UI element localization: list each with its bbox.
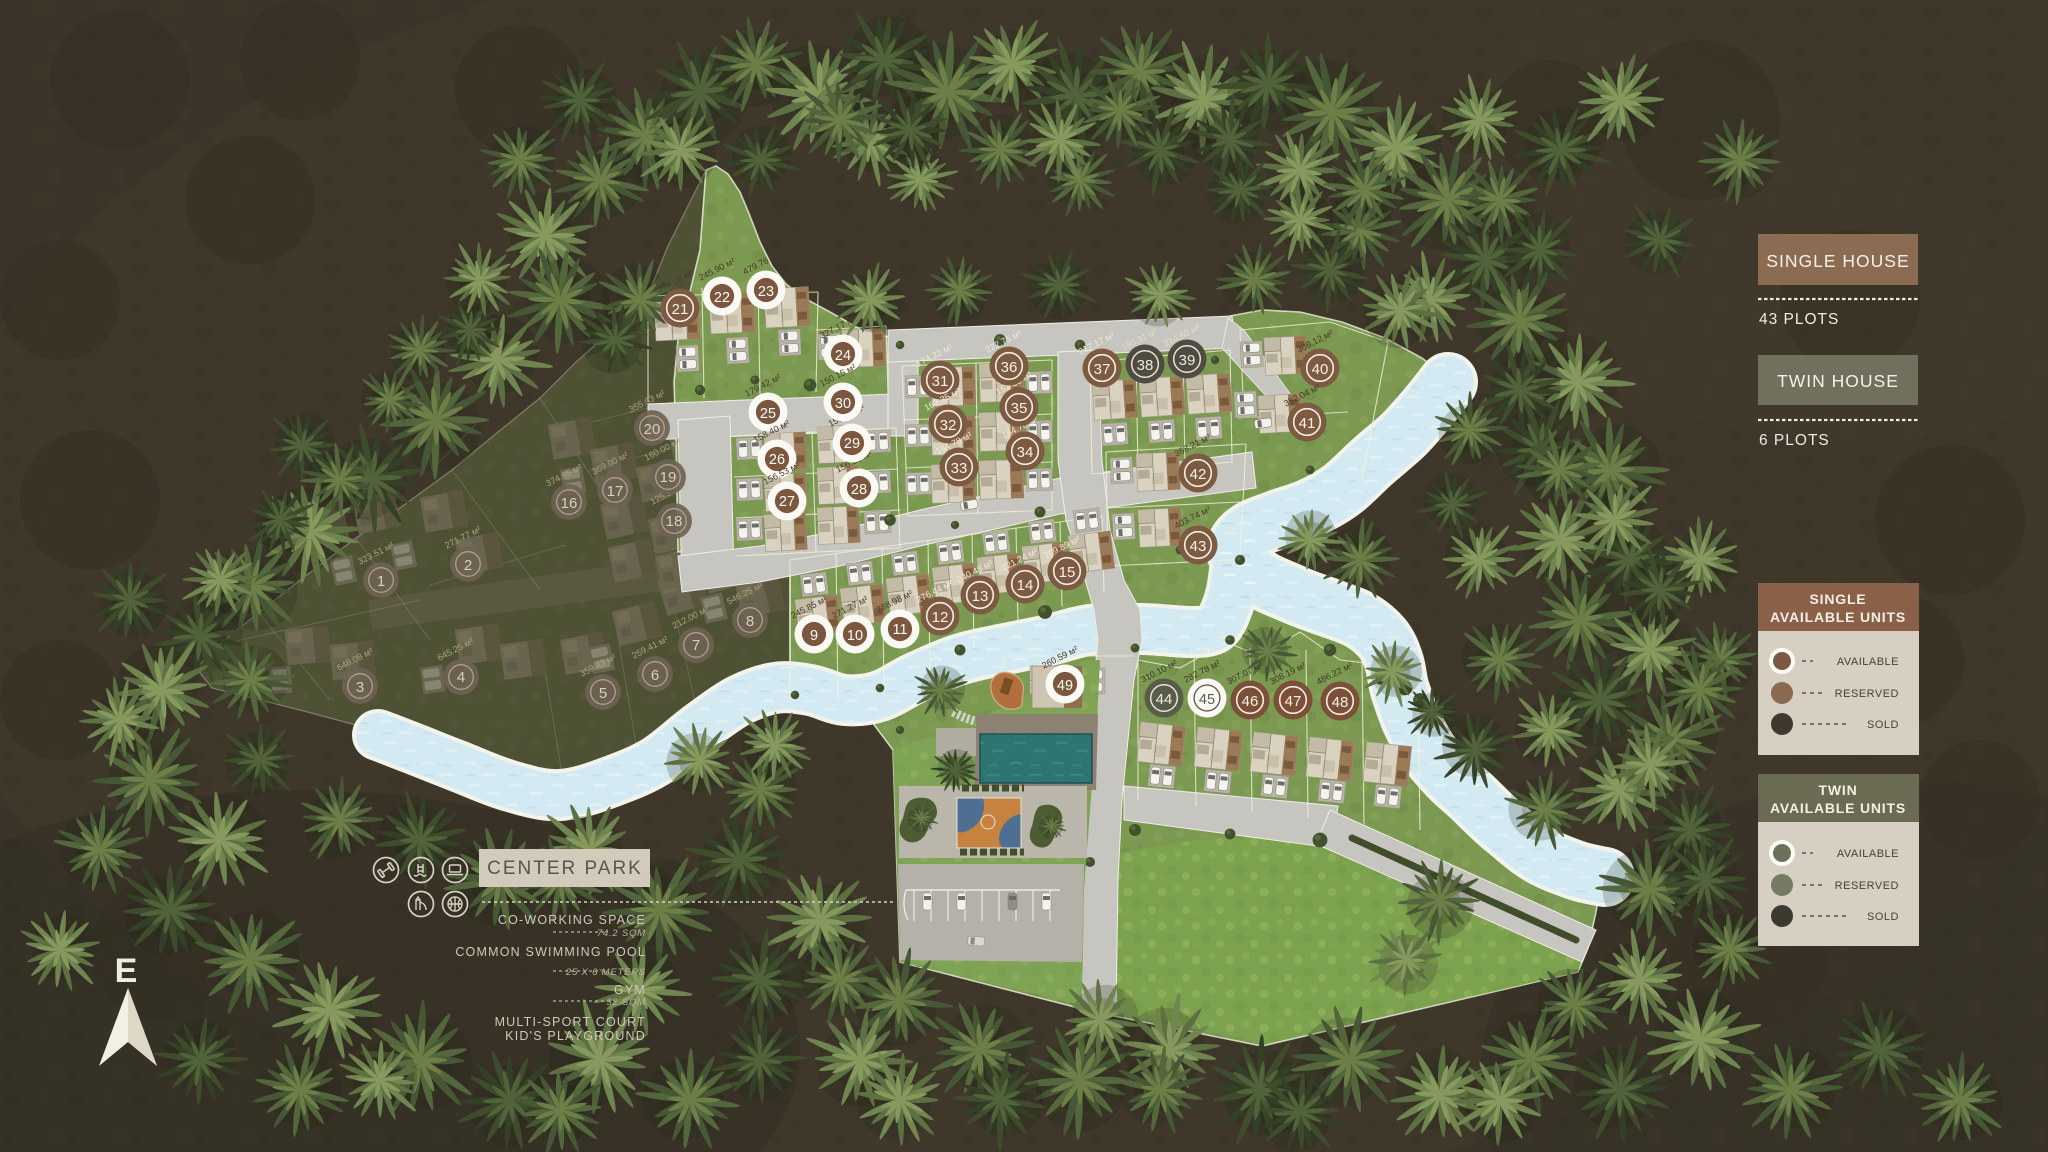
svg-text:15: 15 — [1059, 564, 1076, 581]
svg-text:RESERVED: RESERVED — [1835, 880, 1899, 892]
svg-text:KID'S PLAYGROUND: KID'S PLAYGROUND — [505, 1029, 646, 1043]
svg-text:45: 45 — [1199, 692, 1215, 708]
svg-text:25 X 6 METERS: 25 X 6 METERS — [565, 967, 646, 978]
svg-text:20: 20 — [644, 421, 661, 438]
svg-text:4: 4 — [457, 669, 465, 686]
svg-text:1: 1 — [377, 573, 385, 590]
svg-text:SOLD: SOLD — [1867, 719, 1899, 731]
svg-text:10: 10 — [847, 628, 863, 644]
svg-text:24: 24 — [835, 348, 851, 364]
svg-text:32 SQM: 32 SQM — [606, 997, 646, 1008]
svg-text:AVAILABLE: AVAILABLE — [1837, 656, 1899, 668]
svg-text:30: 30 — [835, 396, 851, 412]
svg-text:23: 23 — [758, 284, 774, 300]
svg-text:32: 32 — [940, 417, 957, 434]
svg-text:5: 5 — [599, 685, 607, 702]
svg-text:14: 14 — [1017, 577, 1034, 594]
svg-text:CO-WORKING SPACE: CO-WORKING SPACE — [498, 913, 646, 927]
svg-text:37: 37 — [1094, 361, 1111, 378]
svg-text:18: 18 — [666, 513, 683, 530]
svg-text:GYM: GYM — [614, 983, 646, 997]
svg-text:12: 12 — [932, 609, 949, 626]
svg-text:COMMON SWIMMING POOL: COMMON SWIMMING POOL — [455, 945, 646, 959]
svg-text:RESERVED: RESERVED — [1835, 688, 1899, 700]
svg-text:6: 6 — [651, 667, 659, 684]
svg-text:74.2 SQM: 74.2 SQM — [597, 928, 646, 939]
svg-text:38: 38 — [1137, 357, 1154, 374]
svg-text:MULTI-SPORT COURT: MULTI-SPORT COURT — [495, 1015, 646, 1029]
svg-text:16: 16 — [561, 495, 578, 512]
svg-text:36: 36 — [1001, 359, 1018, 376]
svg-text:42: 42 — [1190, 466, 1207, 483]
svg-text:2: 2 — [464, 557, 472, 574]
svg-text:CENTER PARK: CENTER PARK — [487, 858, 643, 879]
svg-text:46: 46 — [1242, 693, 1259, 710]
svg-text:48: 48 — [1332, 694, 1349, 711]
svg-text:6 PLOTS: 6 PLOTS — [1759, 432, 1830, 449]
svg-text:47: 47 — [1285, 693, 1302, 710]
svg-text:7: 7 — [692, 637, 700, 654]
svg-text:34: 34 — [1017, 444, 1034, 461]
svg-text:28: 28 — [851, 482, 867, 498]
svg-text:9: 9 — [810, 628, 818, 644]
svg-text:SINGLE: SINGLE — [1810, 591, 1867, 607]
svg-text:22: 22 — [714, 290, 730, 306]
svg-text:41: 41 — [1299, 415, 1316, 432]
svg-text:31: 31 — [932, 373, 949, 390]
svg-text:29: 29 — [844, 436, 860, 452]
svg-text:SOLD: SOLD — [1867, 911, 1899, 923]
svg-text:TWIN HOUSE: TWIN HOUSE — [1777, 371, 1899, 391]
svg-text:26: 26 — [769, 452, 785, 468]
svg-text:17: 17 — [607, 483, 624, 500]
svg-text:11: 11 — [892, 622, 907, 638]
svg-text:43: 43 — [1190, 538, 1207, 555]
svg-text:13: 13 — [972, 588, 989, 605]
svg-text:AVAILABLE UNITS: AVAILABLE UNITS — [1770, 609, 1906, 625]
svg-text:AVAILABLE: AVAILABLE — [1837, 848, 1899, 860]
svg-text:33: 33 — [951, 460, 968, 477]
svg-text:39: 39 — [1179, 352, 1196, 369]
svg-text:SINGLE HOUSE: SINGLE HOUSE — [1766, 251, 1909, 271]
svg-text:TWIN: TWIN — [1819, 782, 1858, 798]
svg-text:21: 21 — [672, 301, 689, 318]
svg-text:3: 3 — [356, 679, 364, 696]
svg-text:49: 49 — [1057, 678, 1073, 694]
svg-text:35: 35 — [1011, 400, 1028, 417]
svg-text:AVAILABLE UNITS: AVAILABLE UNITS — [1770, 800, 1906, 816]
svg-text:19: 19 — [660, 469, 677, 486]
svg-text:25: 25 — [760, 406, 776, 422]
svg-text:43 PLOTS: 43 PLOTS — [1759, 311, 1839, 328]
svg-text:40: 40 — [1312, 361, 1329, 378]
svg-text:8: 8 — [746, 613, 754, 630]
svg-text:E: E — [115, 952, 138, 990]
svg-text:44: 44 — [1156, 691, 1173, 708]
svg-text:27: 27 — [779, 494, 795, 510]
